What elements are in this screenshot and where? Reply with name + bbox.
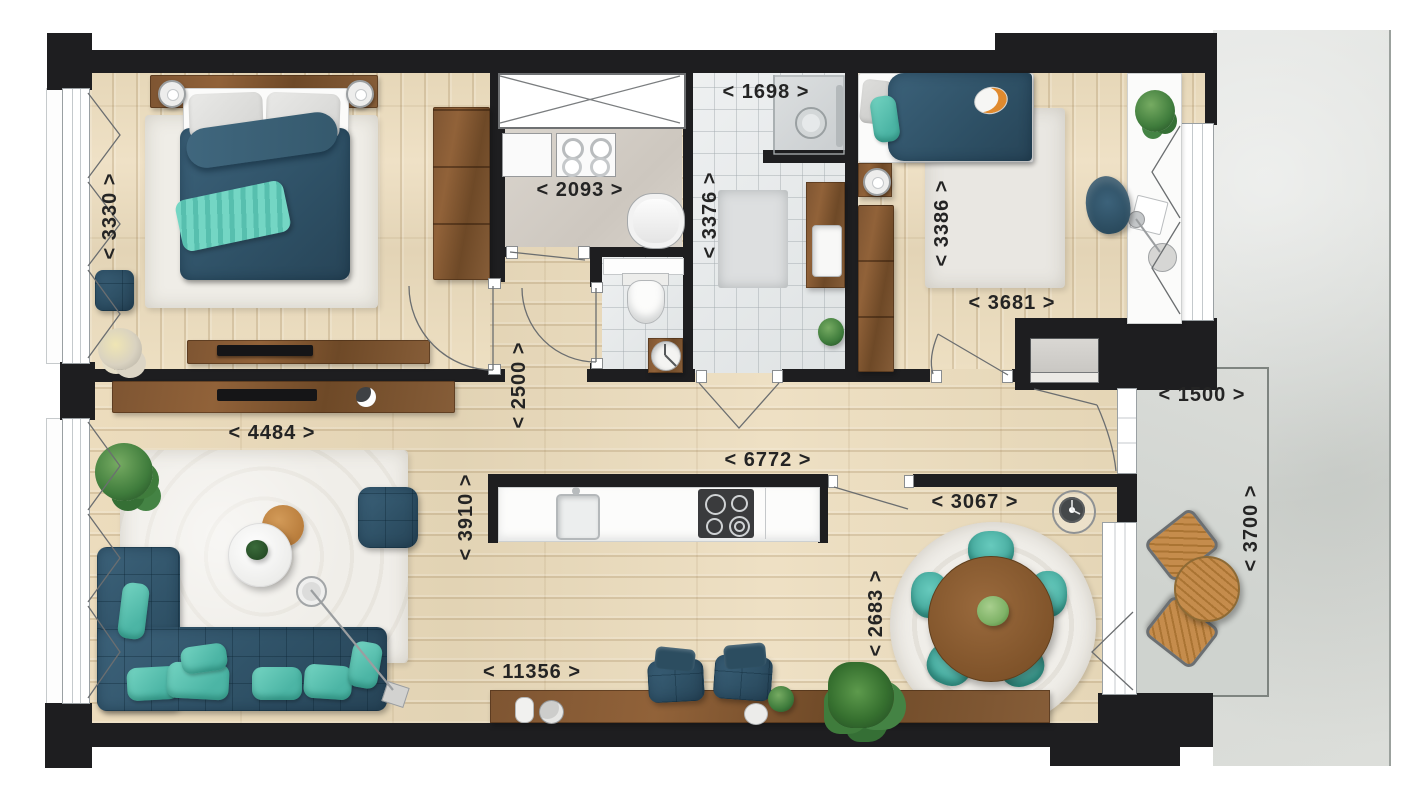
door-jamb [1002, 370, 1013, 383]
dim-3681: < 3681 > [969, 293, 1056, 313]
dim-3330: < 3330 > [100, 173, 120, 260]
table-lamp [356, 387, 376, 407]
wall-kitchen-cap-left [488, 474, 498, 543]
dim-3386: < 3386 > [932, 180, 952, 267]
floor-cushion-pillow [723, 642, 767, 670]
pouf [95, 270, 134, 311]
washing-machine [502, 133, 552, 177]
toilet-basin [651, 341, 681, 371]
wall-bottom [65, 723, 1113, 747]
toilet-bowl [627, 280, 665, 324]
balcony-door-window [1102, 522, 1137, 695]
vase [515, 697, 534, 723]
bathroom-plant [818, 318, 844, 346]
door-jamb [591, 358, 603, 369]
wall-top-left-pier [47, 33, 92, 90]
burner [729, 516, 750, 537]
entry-porch [1030, 338, 1099, 374]
door-jamb [828, 475, 838, 488]
door-jamb [696, 370, 707, 383]
dim-3700: < 3700 > [1241, 485, 1261, 572]
sink-faucet [572, 487, 580, 495]
wall-hall-south [913, 474, 1137, 487]
door-jamb [488, 278, 501, 289]
wall-bottom-right-step [1050, 723, 1180, 766]
bath-rug [718, 190, 788, 288]
dim-3910: < 3910 > [456, 474, 476, 561]
floor-plan: < 3330 > < 2093 > < 1698 > < 3376 > < 33… [0, 0, 1424, 803]
bedside-lamp [346, 80, 374, 108]
entry-door-threshold [1030, 372, 1099, 383]
window-second-bedroom [1180, 123, 1214, 321]
bedside-lamp [158, 80, 186, 108]
coffee-table-plant [246, 540, 268, 560]
tv-living [217, 389, 317, 401]
window-master-bedroom [62, 88, 90, 364]
dim-3376: < 3376 > [700, 172, 720, 259]
wall-utility-south-b [588, 247, 602, 257]
shower-head [795, 107, 827, 139]
window-living-room [62, 418, 90, 704]
single-duvet [888, 73, 1032, 161]
wall-bathroom-bedroom2 [845, 73, 858, 382]
floor-cushion-pillow [654, 646, 696, 672]
door-jamb [931, 370, 942, 383]
dim-4484: < 4484 > [229, 423, 316, 443]
ottoman [358, 487, 418, 548]
burner [705, 494, 726, 515]
kitchen-counter [498, 487, 820, 542]
dim-2500: < 2500 > [509, 342, 529, 429]
dim-1500: < 1500 > [1159, 385, 1246, 405]
wall-clock-hub [1069, 507, 1075, 513]
wall-toilet-top [602, 247, 683, 257]
door-jamb [488, 364, 501, 375]
sofa-cushion [303, 663, 353, 700]
desk-lamp-base [1148, 243, 1177, 272]
burner [706, 518, 723, 535]
bench-plant [768, 686, 794, 712]
dried-plant [98, 328, 142, 370]
dryer-drum [590, 157, 610, 177]
wall-top-right [995, 33, 1217, 50]
wall-bedroom2-right-top [1205, 50, 1217, 125]
nightstand-lamp [863, 168, 891, 196]
door-jamb [772, 370, 783, 383]
door-jamb [591, 282, 603, 293]
wardrobe-bedroom2 [858, 205, 894, 372]
storage-cabinet [498, 73, 686, 129]
bathroom-sink [812, 225, 842, 277]
dim-1698: < 1698 > [723, 82, 810, 102]
burner [731, 495, 748, 512]
dim-6772: < 6772 > [725, 450, 812, 470]
shower-column [836, 85, 843, 147]
window-entry-sidelight [1117, 388, 1137, 474]
bowl [539, 700, 564, 724]
wall-top [47, 50, 1217, 73]
kitchen-sink [556, 494, 600, 540]
wall-kitchen-back [488, 474, 828, 487]
desk-plant [1135, 90, 1175, 132]
plate [744, 703, 768, 725]
balcony-table [1174, 556, 1240, 622]
tv-bedroom [217, 345, 313, 356]
wardrobe [433, 107, 490, 280]
water-heater [627, 193, 685, 249]
counter-divider [765, 488, 766, 539]
dim-2093: < 2093 > [537, 180, 624, 200]
dim-11356: < 11356 > [483, 662, 581, 682]
door-jamb [506, 246, 518, 259]
dim-2683: < 2683 > [866, 570, 886, 657]
wall-dining-right-pier [1117, 470, 1137, 522]
desk-lamp-joint [1128, 211, 1145, 228]
sofa-cushion [252, 667, 302, 700]
dryer-drum [562, 157, 582, 177]
floor-lamp-shade [296, 576, 327, 607]
door-jamb [578, 246, 590, 259]
wall-shower-stub [763, 150, 845, 163]
door-jamb [904, 475, 914, 488]
palm-plant [828, 662, 894, 728]
dim-3067: < 3067 > [932, 492, 1019, 512]
living-plant [95, 443, 153, 501]
table-centerpiece [977, 596, 1009, 626]
